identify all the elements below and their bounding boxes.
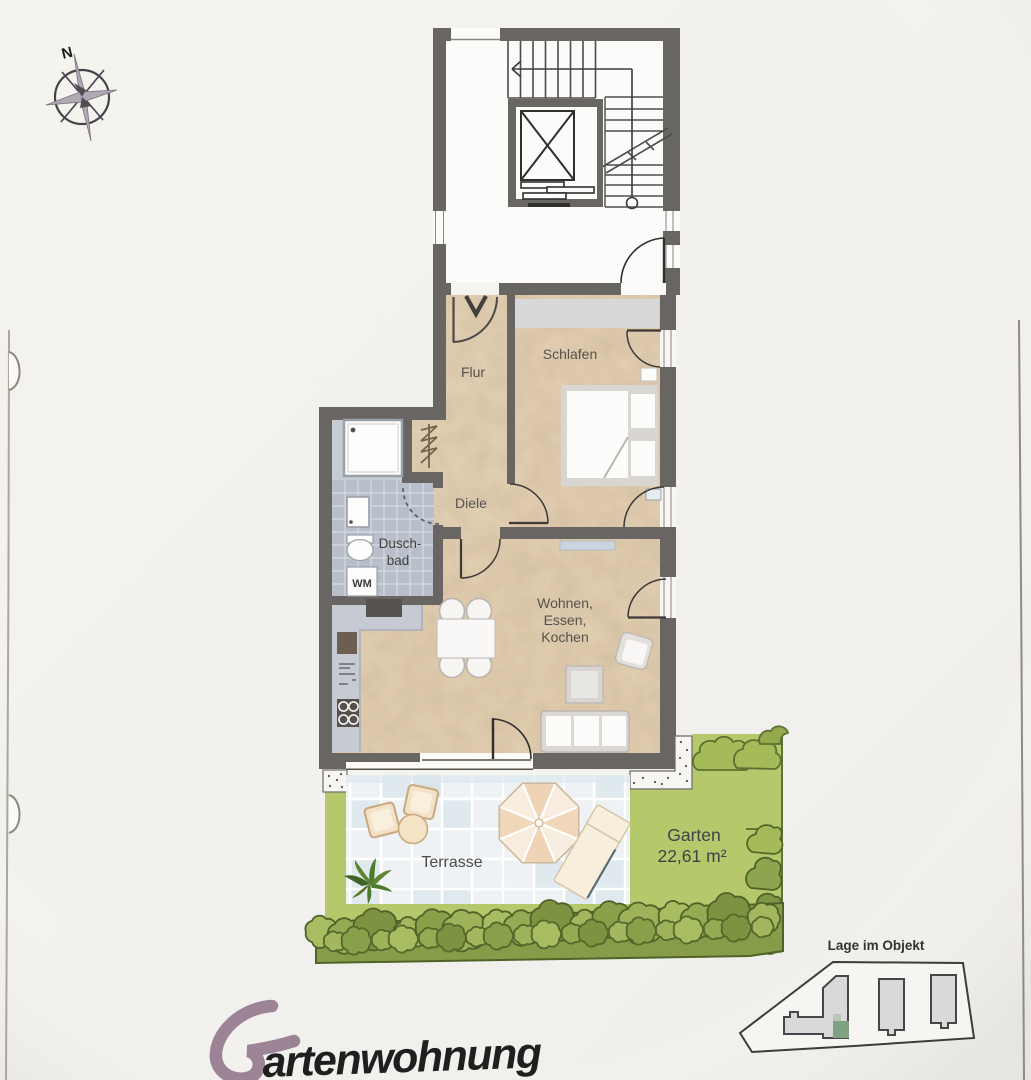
svg-text:bad: bad <box>387 553 410 568</box>
svg-text:Kochen: Kochen <box>541 629 588 645</box>
svg-text:Schlafen: Schlafen <box>543 346 597 362</box>
svg-text:Wohnen,: Wohnen, <box>537 595 593 611</box>
svg-text:Terrasse: Terrasse <box>421 854 482 871</box>
svg-text:artenwohnung: artenwohnung <box>262 1029 543 1080</box>
svg-text:Flur: Flur <box>461 364 485 380</box>
svg-text:Lage im Objekt: Lage im Objekt <box>828 938 925 953</box>
svg-text:Essen,: Essen, <box>544 612 587 628</box>
svg-text:Garten: Garten <box>667 825 721 845</box>
svg-text:Diele: Diele <box>455 495 487 511</box>
svg-text:22,61 m²: 22,61 m² <box>657 846 726 866</box>
svg-text:Dusch-: Dusch- <box>379 536 422 551</box>
svg-text:WM: WM <box>352 578 372 590</box>
